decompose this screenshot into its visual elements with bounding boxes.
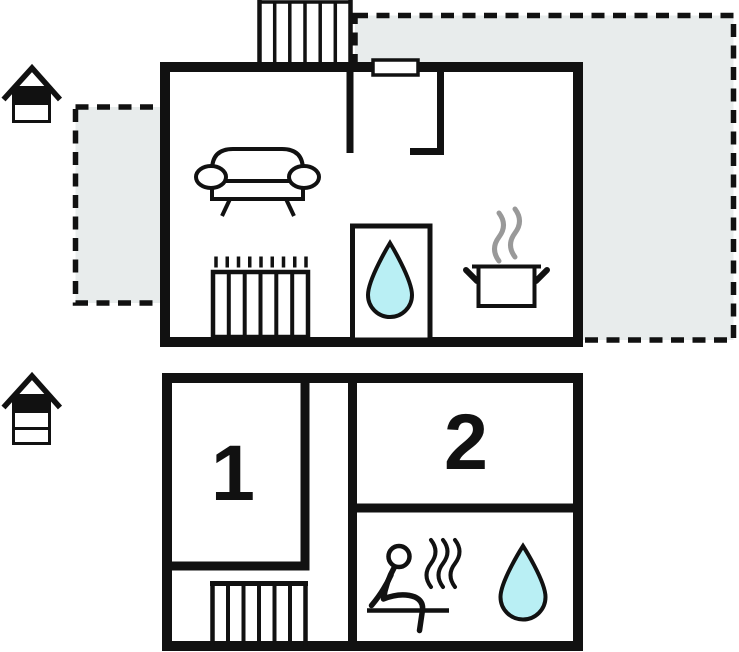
upper-floor-plan — [76, 0, 734, 342]
terrace-left-area — [76, 107, 167, 303]
shower-room — [353, 226, 431, 340]
house-highlighted-level — [12, 86, 51, 105]
sofa-armrest — [289, 166, 319, 188]
room-2-label: 2 — [444, 397, 488, 486]
pot-body — [479, 267, 535, 307]
staircase-top-icon — [258, 0, 353, 63]
sofa-armrest — [196, 166, 226, 188]
lower-floor-plan: 1 2 — [167, 378, 578, 646]
room-1-label: 1 — [211, 428, 255, 517]
floor-plan-canvas: 1 2 — [0, 0, 739, 652]
sauna-person-head — [389, 546, 410, 567]
floorplan-image: 1 2 — [0, 0, 739, 652]
house-highlighted-level — [12, 394, 51, 413]
house-lower-level-icon — [4, 376, 61, 444]
window-icon — [373, 60, 418, 75]
house-upper-level-icon — [4, 68, 61, 122]
